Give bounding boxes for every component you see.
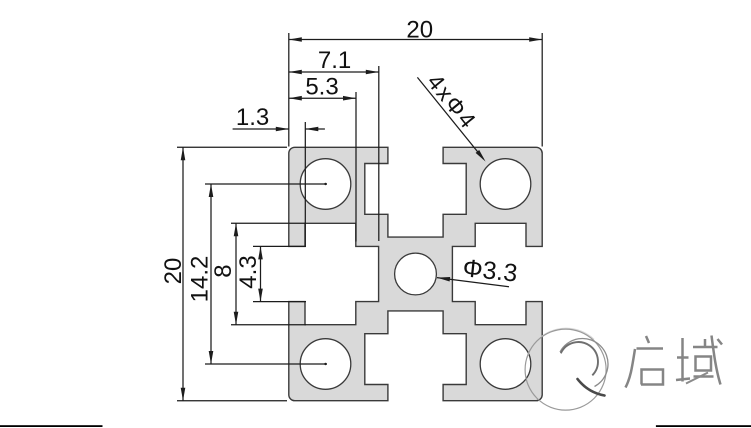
svg-text:8: 8 (210, 264, 237, 277)
svg-text:4.3: 4.3 (235, 255, 262, 288)
svg-text:5.3: 5.3 (305, 74, 338, 101)
svg-text:4xΦ4: 4xΦ4 (422, 69, 482, 135)
svg-text:20: 20 (406, 16, 433, 43)
svg-text:7.1: 7.1 (318, 47, 351, 74)
svg-text:1.3: 1.3 (236, 104, 269, 131)
svg-text:20: 20 (160, 258, 187, 285)
svg-text:Φ3.3: Φ3.3 (461, 254, 518, 288)
svg-text:14.2: 14.2 (187, 256, 214, 303)
